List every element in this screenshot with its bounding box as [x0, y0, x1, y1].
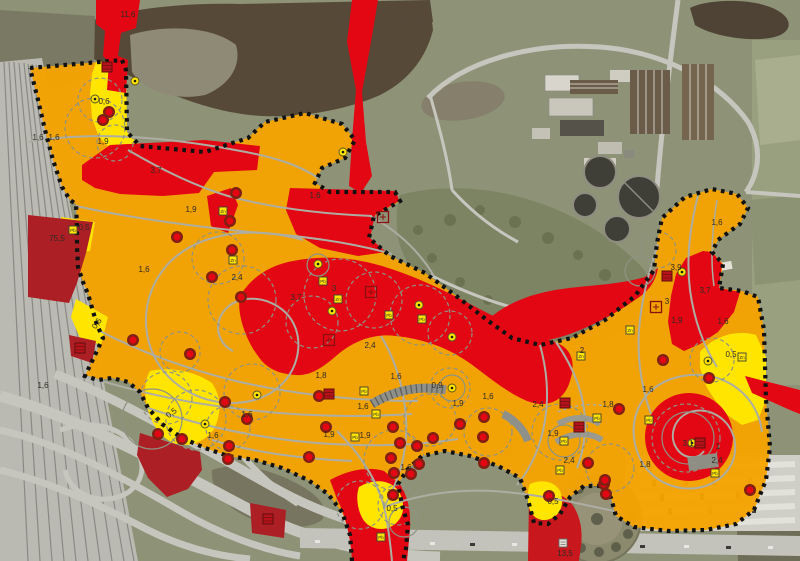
tree-marker-core-icon [305, 453, 312, 460]
value-label: 0,5 [547, 497, 559, 506]
sample-point-dot-icon [317, 263, 320, 266]
value-label: 1,9 [671, 316, 683, 325]
red-square-marker-icon [695, 438, 705, 448]
red-square-marker-icon [102, 62, 112, 72]
white-square-marker-icon [559, 539, 567, 547]
value-label: 3,7 [699, 286, 711, 295]
aerial-planning-map: PbZnZnPbZnPbPbPbPbPbPbZnZnZnPbPbPbPbPb 1… [0, 0, 800, 561]
tree-marker-core-icon [705, 374, 712, 381]
tree-marker-core-icon [237, 293, 244, 300]
value-label: 1,6 [717, 317, 729, 326]
sample-point-dot-icon [94, 98, 97, 101]
value-label: 2,4 [364, 341, 376, 350]
tree-marker-core-icon [221, 398, 228, 405]
sample-point-dot-icon [256, 394, 259, 397]
value-label: 1,9 [323, 430, 335, 439]
tree-marker-core-icon [315, 392, 322, 399]
tree-marker-core-icon [224, 455, 231, 462]
value-label: 0,6 [98, 97, 110, 106]
tree-marker-core-icon [396, 439, 403, 446]
tree-marker-core-icon [480, 413, 487, 420]
red-square-marker-icon [324, 389, 334, 399]
value-label: 1,6 [48, 133, 60, 142]
tree-marker-core-icon [154, 430, 161, 437]
sample-square-symbol: Pb [373, 412, 379, 417]
sample-square-symbol: Pb [419, 317, 425, 322]
sample-point-dot-icon [707, 360, 710, 363]
tree-marker-core-icon [99, 116, 106, 123]
value-label: 2,4 [532, 400, 544, 409]
field-patch-1 [755, 55, 800, 145]
sample-square-symbol: Pb [320, 279, 326, 284]
sample-point-dot-icon [451, 336, 454, 339]
value-label: 1,6 [309, 191, 321, 200]
sample-square-symbol: Zn [627, 328, 633, 333]
value-label: 0,5 [386, 504, 398, 513]
tree-marker-core-icon [415, 460, 422, 467]
tree-marker-core-icon [105, 108, 112, 115]
value-label: 1,9 [547, 429, 559, 438]
value-label: 13,5 [557, 549, 573, 558]
tree-marker-core-icon [129, 336, 136, 343]
tree-marker-core-icon [746, 486, 753, 493]
tree-marker-core-icon [413, 442, 420, 449]
tree-marker-core-icon [232, 189, 239, 196]
tree-marker-core-icon [389, 423, 396, 430]
value-label: 1,6 [711, 218, 723, 227]
sample-square-symbol: Pb [712, 471, 718, 476]
value-label: 1,9 [97, 137, 109, 146]
value-label: 2,4 [231, 273, 243, 282]
tree-marker-core-icon [178, 435, 185, 442]
tree-marker-core-icon [228, 246, 235, 253]
tree-marker-core-icon [479, 433, 486, 440]
value-label: 3,7 [150, 166, 162, 175]
tree-marker-core-icon [389, 491, 396, 498]
value-label: 1,6 [138, 265, 150, 274]
sample-square-symbol: Pb [361, 389, 367, 394]
sample-square-symbol: Pb [561, 439, 567, 444]
tree-marker-core-icon [584, 459, 591, 466]
value-label: 1,6 [37, 381, 49, 390]
sample-point-dot-icon [331, 310, 334, 313]
value-label: 1,8 [315, 371, 327, 380]
value-label: 3 [665, 297, 670, 306]
value-label: 1,6 [207, 431, 219, 440]
value-label: 0,5 [725, 350, 737, 359]
red-square-marker-icon [662, 271, 672, 281]
value-label: 0,9 [431, 381, 443, 390]
tree-marker-core-icon [615, 405, 622, 412]
value-label: 3,7 [290, 293, 302, 302]
value-label: 1,6 [400, 463, 412, 472]
value-label: 2,4 [563, 456, 575, 465]
value-label: 1,6 [241, 410, 253, 419]
tree-marker-core-icon [186, 350, 193, 357]
tree-marker-core-icon [429, 434, 436, 441]
red-square-marker-icon [263, 514, 273, 524]
sample-square-symbol: Pb [594, 416, 600, 421]
sample-square-symbol: Pb [378, 535, 384, 540]
sample-point-dot-icon [342, 151, 345, 154]
value-label: 1 [716, 442, 721, 451]
sample-square-symbol: Zn [739, 355, 745, 360]
tree-marker-core-icon [659, 356, 666, 363]
sample-square-symbol: Zn [220, 209, 226, 214]
tree-marker-core-icon [225, 442, 232, 449]
value-label: 3,9 [670, 263, 682, 272]
value-label: 3 [332, 284, 337, 293]
sample-square-symbol: Pb [557, 468, 563, 473]
tree-marker-core-icon [390, 469, 397, 476]
sample-square-symbol: Zn [335, 297, 341, 302]
value-label: 1,9 [185, 205, 197, 214]
map-canvas: PbZnZnPbZnPbPbPbPbPbPbZnZnZnPbPbPbPbPb 1… [0, 0, 800, 561]
value-label: 1,6 [642, 385, 654, 394]
value-label: 1,6 [482, 392, 494, 401]
sample-square-symbol: Pb [70, 228, 76, 233]
value-label: 11,6 [121, 10, 137, 19]
value-label: 1,8 [639, 460, 651, 469]
value-label: 1,8 [602, 400, 614, 409]
value-label: 1,9 [452, 399, 464, 408]
value-label: 1,6 [32, 133, 44, 142]
sample-square-symbol: Zn [230, 258, 236, 263]
value-label: 3,1 [682, 439, 694, 448]
sample-square-symbol: Pb [646, 418, 652, 423]
field-patch-2 [750, 195, 800, 285]
value-label: 2 [580, 346, 585, 355]
value-label: 75,5 [49, 234, 65, 243]
red-square-marker-icon [75, 343, 85, 353]
value-label: 1,6 [390, 372, 402, 381]
value-label: 2,4 [711, 456, 723, 465]
tree-marker-core-icon [208, 273, 215, 280]
red-square-marker-icon [560, 398, 570, 408]
sample-point-dot-icon [204, 423, 207, 426]
red-square-marker-icon [574, 422, 584, 432]
value-label: 0,5 [78, 223, 90, 232]
tree-marker-core-icon [480, 459, 487, 466]
tree-marker-core-icon [387, 454, 394, 461]
tree-marker-core-icon [173, 233, 180, 240]
value-label: 1,9 [359, 431, 371, 440]
tree-marker-core-icon [226, 217, 233, 224]
sample-square-symbol: Pb [386, 313, 392, 318]
sample-point-dot-icon [134, 80, 137, 83]
sample-point-dot-icon [418, 304, 421, 307]
tree-marker-core-icon [601, 476, 608, 483]
tree-marker-core-icon [602, 490, 609, 497]
sample-point-dot-icon [451, 387, 454, 390]
sample-square-symbol: Pb [352, 435, 358, 440]
tree-marker-core-icon [456, 420, 463, 427]
value-label: 1,6 [357, 402, 369, 411]
